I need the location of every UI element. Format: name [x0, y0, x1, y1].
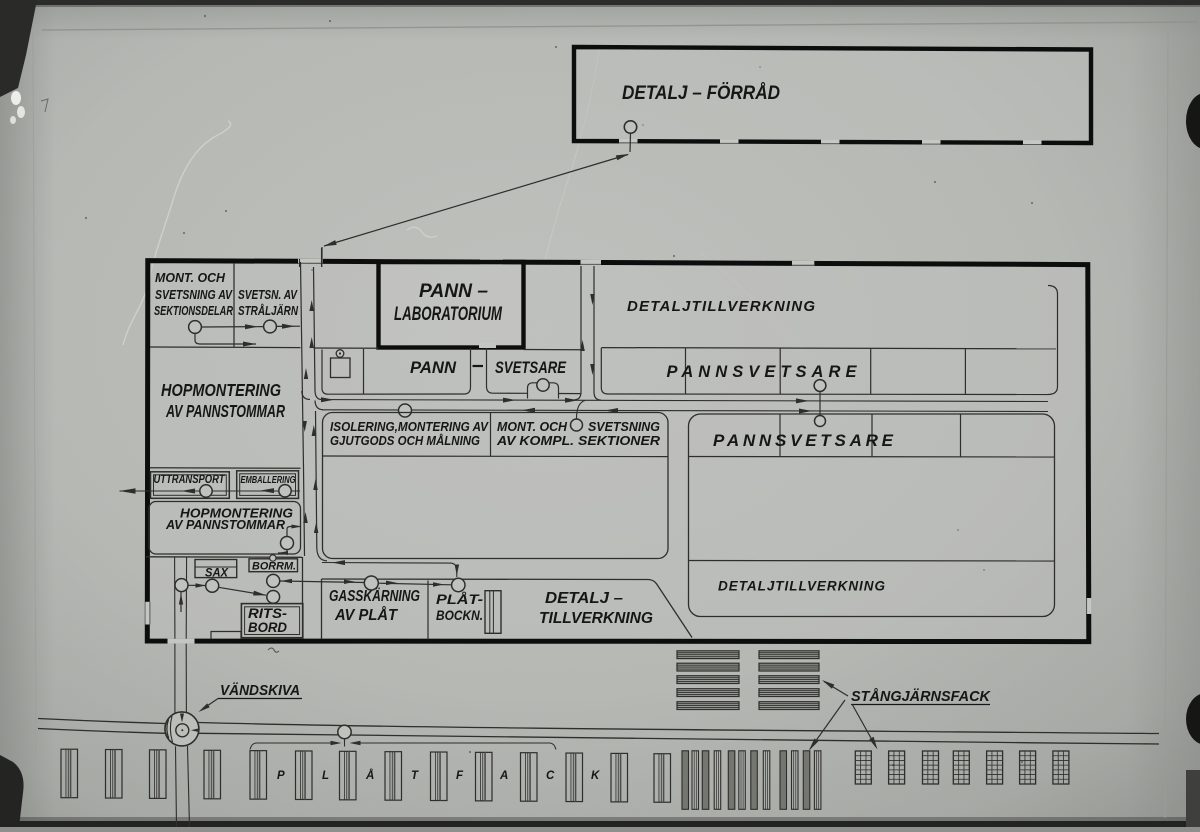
svg-text:SVETSN. AV: SVETSN. AV — [238, 288, 298, 302]
svg-text:UTTRANSPORT: UTTRANSPORT — [154, 474, 226, 486]
svg-text:A: A — [499, 770, 508, 782]
svg-text:MONT. OCH: MONT. OCH — [155, 271, 226, 285]
svg-text:BORRM.: BORRM. — [252, 561, 296, 573]
svg-text:Å: Å — [365, 769, 374, 782]
svg-text:P: P — [277, 770, 285, 782]
svg-text:RITS-: RITS- — [248, 606, 288, 621]
svg-text:BORD: BORD — [248, 620, 287, 635]
svg-text:T: T — [411, 770, 419, 782]
svg-text:AV KOMPL. SEKTIONER: AV KOMPL. SEKTIONER — [496, 433, 661, 448]
svg-text:AV PANNSTOMMAR: AV PANNSTOMMAR — [165, 517, 286, 532]
svg-text:ISOLERING,MONTERING AV: ISOLERING,MONTERING AV — [330, 419, 489, 434]
svg-text:DETALJ – FÖRRÅD: DETALJ – FÖRRÅD — [622, 83, 780, 104]
svg-text:MONT. OCH: MONT. OCH — [497, 419, 568, 434]
svg-text:SVETSNING AV: SVETSNING AV — [155, 288, 233, 302]
svg-text:L: L — [322, 770, 329, 782]
svg-text:PLÅT-: PLÅT- — [436, 592, 484, 607]
svg-text:VÄNDSKIVA: VÄNDSKIVA — [220, 682, 300, 699]
svg-text:EMBALLERING: EMBALLERING — [241, 474, 296, 486]
svg-text:PANN: PANN — [410, 359, 457, 377]
svg-text:STÅNGJÄRNSFACK: STÅNGJÄRNSFACK — [851, 688, 991, 705]
svg-text:AV PLÅT: AV PLÅT — [334, 607, 398, 624]
svg-text:SVETSNING: SVETSNING — [588, 419, 660, 434]
svg-text:PANN –: PANN – — [419, 281, 488, 302]
svg-text:LABORATORIUM: LABORATORIUM — [394, 304, 503, 325]
svg-text:BOCKN.: BOCKN. — [436, 608, 483, 623]
svg-text:AV PANNSTOMMAR: AV PANNSTOMMAR — [165, 401, 285, 421]
svg-text:GJUTGODS OCH MÅLNING: GJUTGODS OCH MÅLNING — [330, 433, 480, 448]
svg-text:SEKTIONSDELAR: SEKTIONSDELAR — [154, 304, 233, 318]
svg-text:C: C — [546, 770, 555, 782]
svg-text:TILLVERKNING: TILLVERKNING — [539, 610, 653, 627]
svg-text:F: F — [456, 770, 464, 782]
svg-text:DETALJTILLVERKNING: DETALJTILLVERKNING — [718, 579, 885, 594]
svg-text:DETALJ –: DETALJ – — [545, 590, 623, 607]
svg-text:STRÅLJÄRN: STRÅLJÄRN — [238, 303, 299, 318]
svg-text:HOPMONTERING: HOPMONTERING — [161, 380, 281, 400]
svg-text:DETALJTILLVERKNING: DETALJTILLVERKNING — [627, 298, 815, 315]
svg-text:SVETSARE: SVETSARE — [495, 359, 567, 377]
svg-text:GASSKÄRNING: GASSKÄRNING — [329, 588, 420, 605]
svg-text:K: K — [591, 770, 600, 782]
svg-text:SAX: SAX — [205, 568, 229, 580]
